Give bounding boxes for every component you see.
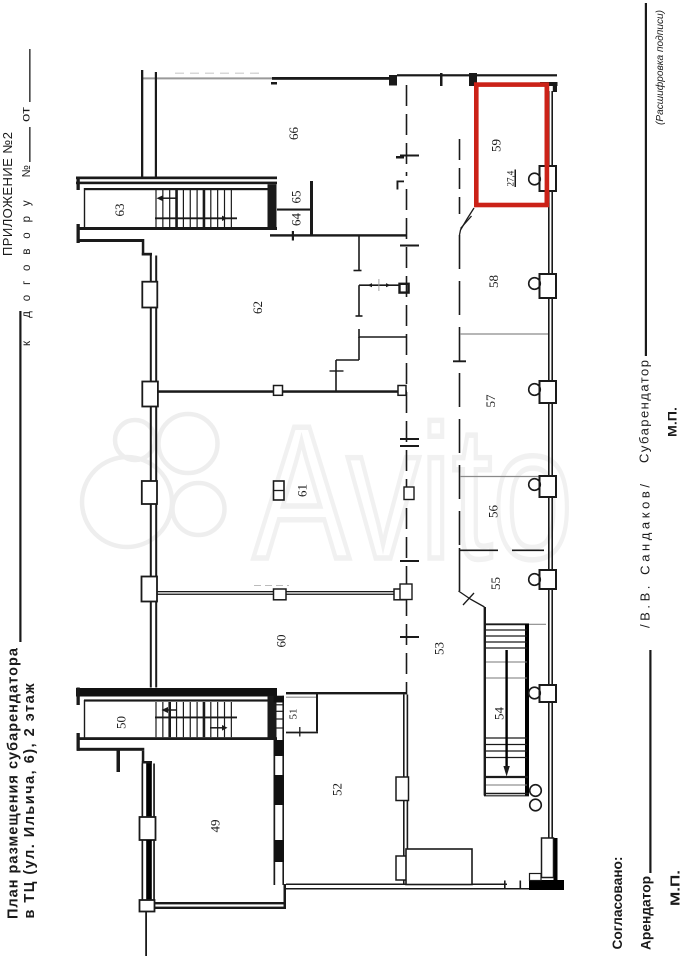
svg-text:(Расшифровка подписи): (Расшифровка подписи) — [654, 10, 666, 125]
svg-text:в ТЦ (ул. Ильича, 6), 2 этаж: в ТЦ (ул. Ильича, 6), 2 этаж — [22, 683, 38, 919]
svg-text:63: 63 — [112, 204, 127, 217]
svg-text:27,4: 27,4 — [506, 170, 516, 186]
svg-text:52: 52 — [330, 783, 345, 796]
svg-text:М.П.: М.П. — [666, 407, 680, 437]
svg-text:ПРИЛОЖЕНИЕ №2: ПРИЛОЖЕНИЕ №2 — [0, 132, 15, 256]
svg-text:/В.В. Сандаков/: /В.В. Сандаков/ — [638, 484, 653, 628]
svg-text:от: от — [20, 106, 32, 122]
svg-text:65: 65 — [289, 191, 304, 204]
svg-text:Согласовано:: Согласовано: — [610, 857, 625, 950]
svg-text:Арендатор: Арендатор — [639, 876, 654, 950]
svg-text:55: 55 — [488, 577, 503, 590]
svg-text:60: 60 — [274, 635, 289, 648]
svg-text:М.П.: М.П. — [668, 870, 683, 906]
svg-text:61: 61 — [295, 484, 310, 497]
svg-text:58: 58 — [486, 275, 501, 288]
svg-text:59: 59 — [489, 139, 504, 152]
svg-text:53: 53 — [432, 642, 447, 655]
svg-text:64: 64 — [289, 213, 304, 227]
svg-text:Субарендатор: Субарендатор — [637, 360, 652, 463]
svg-text:49: 49 — [208, 820, 223, 833]
svg-text:План размещения субарендатора: План размещения субарендатора — [5, 647, 21, 919]
svg-text:54: 54 — [492, 707, 507, 721]
svg-text:56: 56 — [486, 505, 501, 519]
svg-text:51: 51 — [288, 709, 300, 720]
svg-text:57: 57 — [483, 394, 498, 408]
svg-text:к договору №: к договору № — [21, 165, 33, 346]
svg-text:50: 50 — [114, 716, 129, 729]
svg-text:66: 66 — [286, 127, 301, 141]
svg-text:62: 62 — [250, 301, 265, 314]
